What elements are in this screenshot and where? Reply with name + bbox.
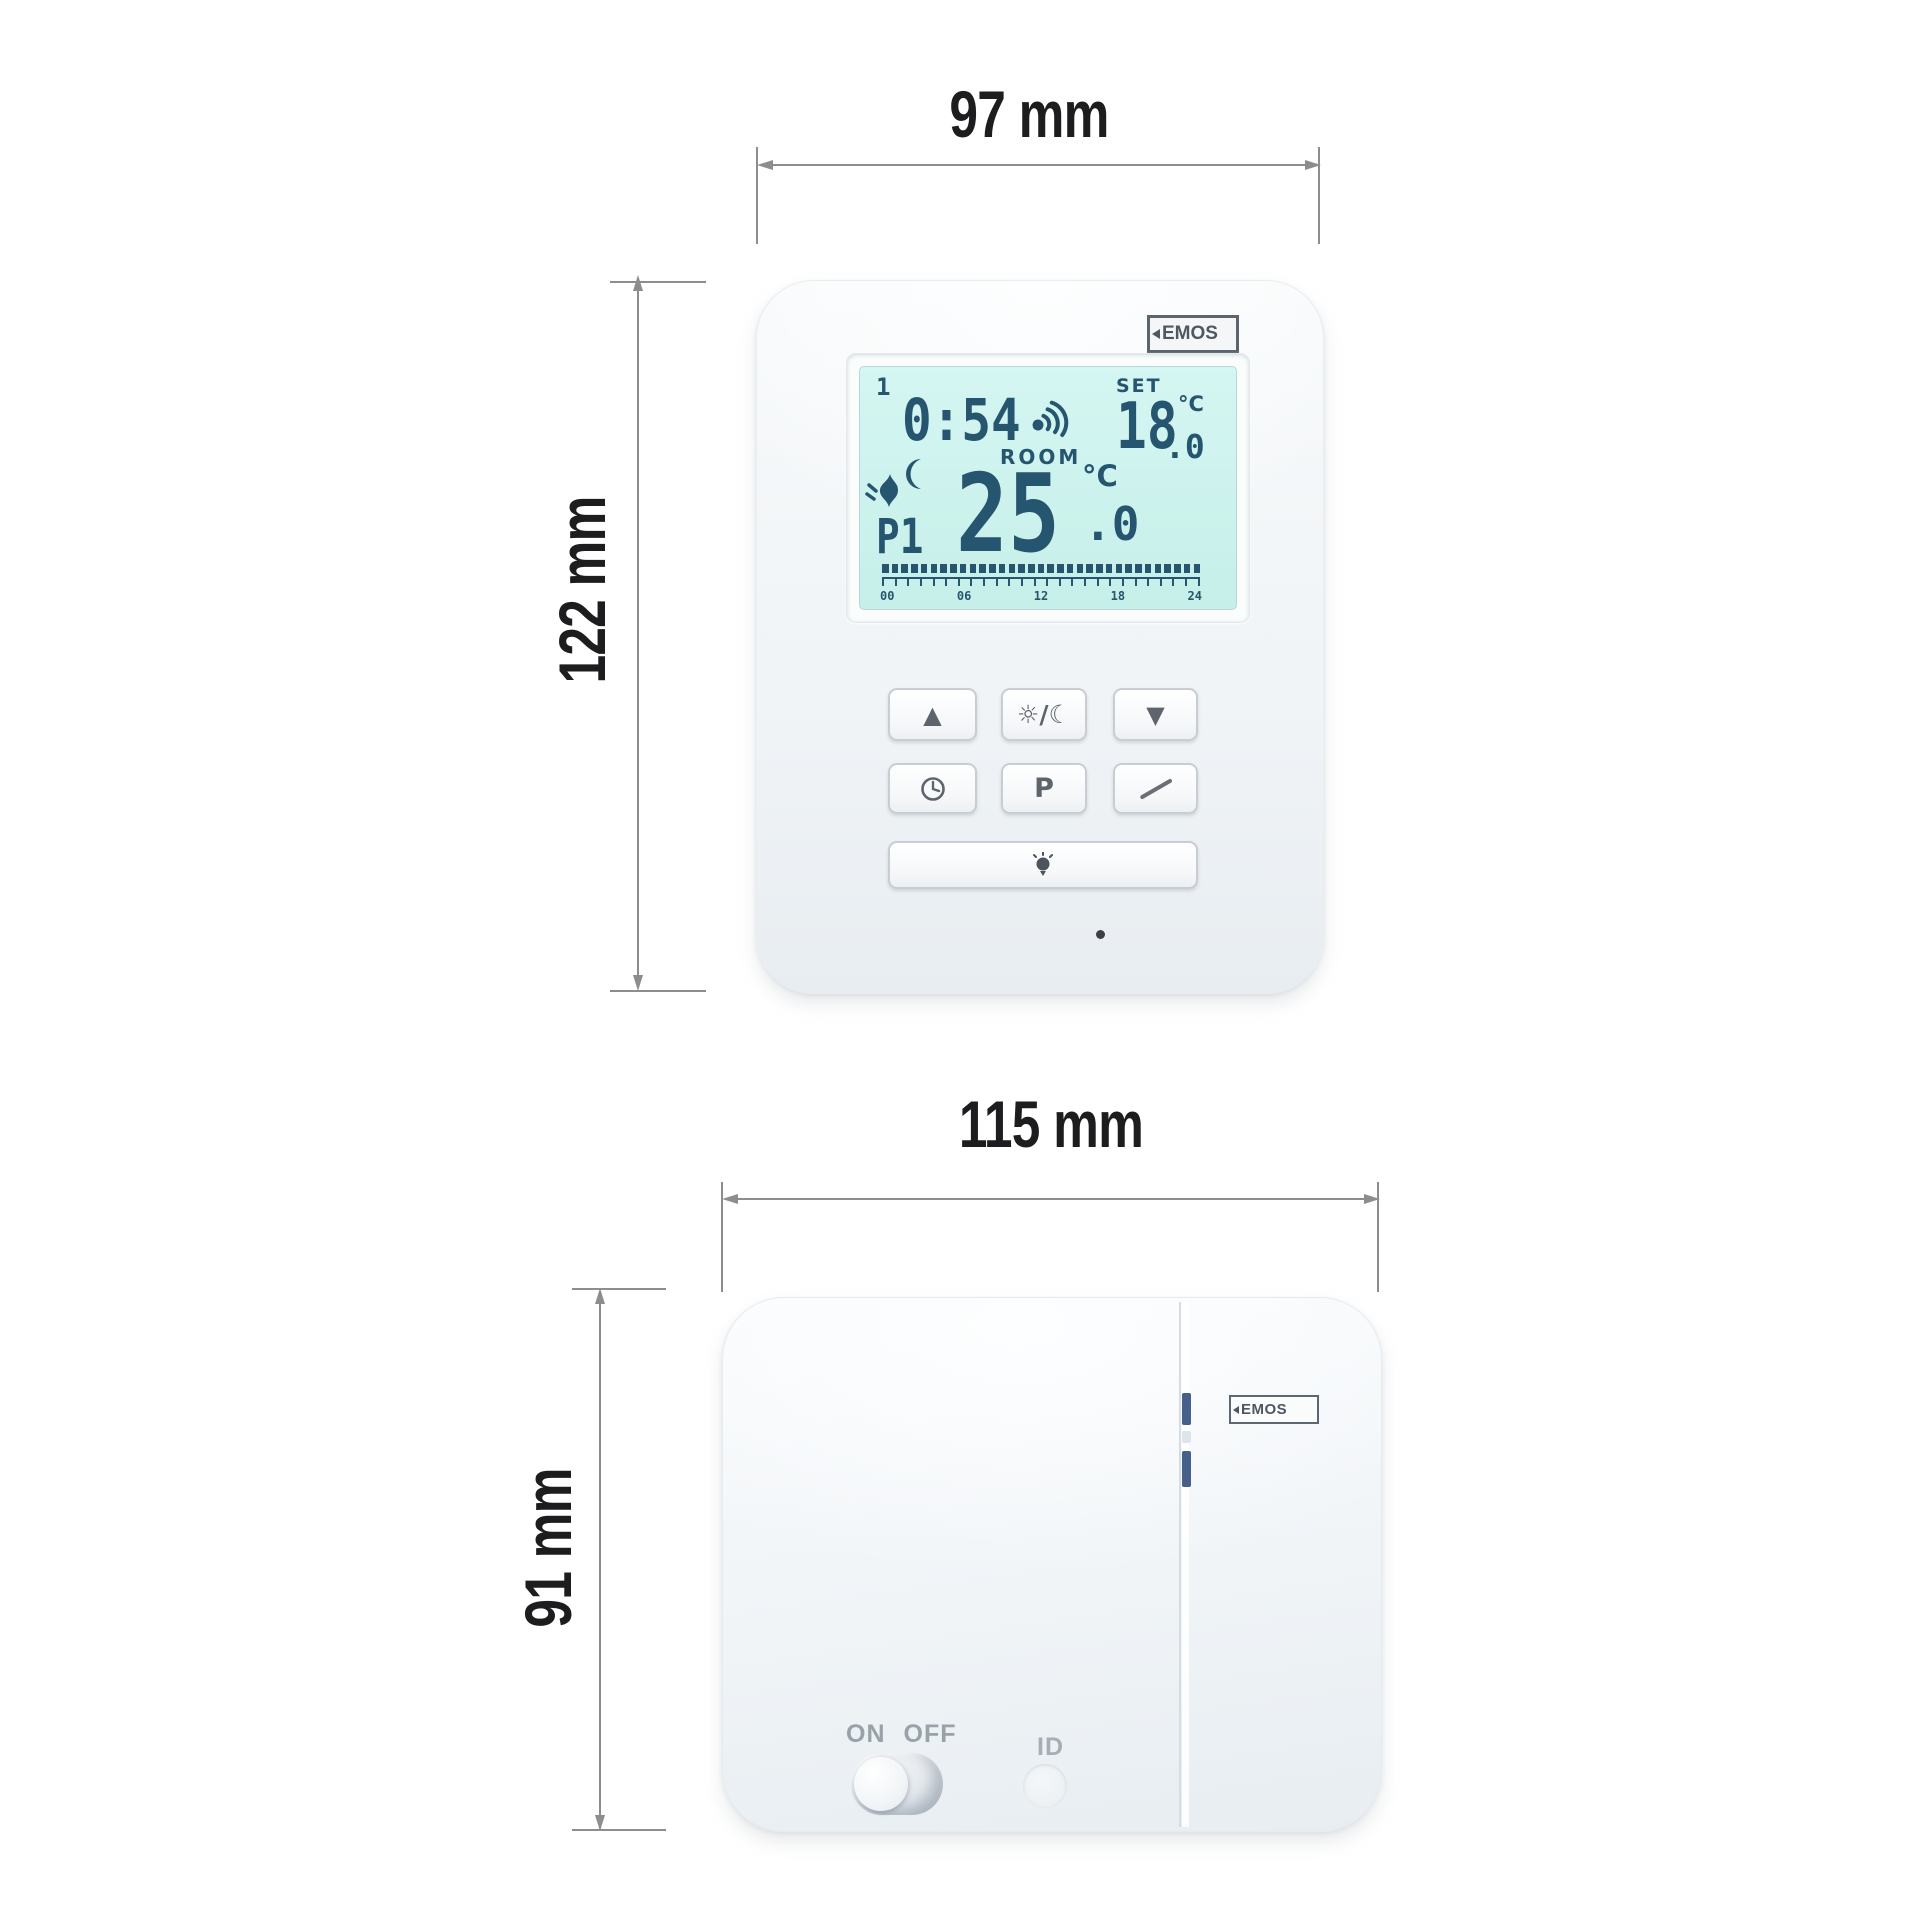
timeline-segment bbox=[1164, 564, 1171, 573]
receiver-height-label: 91 mm bbox=[510, 1468, 586, 1627]
extension-line bbox=[610, 281, 706, 283]
lcd-program-indicator: P1 bbox=[876, 513, 923, 561]
timeline-tick bbox=[1172, 579, 1174, 586]
lcd-room-temperature: 25 bbox=[956, 461, 1060, 569]
receiver-width-label: 115 mm bbox=[934, 1086, 1168, 1162]
timeline-segment bbox=[950, 564, 957, 573]
receiver-led-window-faint bbox=[1182, 1431, 1191, 1443]
clock-button[interactable] bbox=[888, 763, 977, 814]
lcd-screen: 1 0:54 SET bbox=[859, 366, 1237, 610]
timeline-segment bbox=[1145, 564, 1152, 573]
arrowhead-up bbox=[633, 275, 643, 291]
timeline-segment bbox=[901, 564, 908, 573]
lcd-set-unit: °C bbox=[1178, 394, 1204, 415]
timeline-segment bbox=[931, 564, 938, 573]
timeline-segment bbox=[1106, 564, 1113, 573]
timeline-segment bbox=[1038, 564, 1045, 573]
timeline-segment bbox=[970, 564, 977, 573]
power-toggle-switch[interactable] bbox=[851, 1753, 943, 1815]
id-pairing-button[interactable] bbox=[1023, 1764, 1067, 1808]
thermostat-width-dimension-line bbox=[760, 164, 1318, 166]
program-button-label: P bbox=[1034, 775, 1054, 802]
timeline-segment bbox=[1135, 564, 1142, 573]
timeline-segment bbox=[882, 564, 889, 573]
timeline-segment bbox=[1184, 564, 1191, 573]
timeline-segment bbox=[1067, 564, 1074, 573]
program-button[interactable]: P bbox=[1001, 763, 1087, 814]
clock-icon bbox=[919, 775, 947, 803]
timeline-segment bbox=[1096, 564, 1103, 573]
timeline-tick bbox=[945, 579, 947, 586]
timeline-tick bbox=[1147, 579, 1149, 586]
arrowhead-left bbox=[757, 160, 773, 170]
sun-slash-moon-icon: ☼/☾ bbox=[1017, 702, 1071, 727]
timeline-segment bbox=[1009, 564, 1016, 573]
timeline-hour-labels: 00 06 12 18 24 bbox=[880, 589, 1202, 603]
timeline-tick bbox=[1185, 579, 1187, 586]
timeline-segment bbox=[1077, 564, 1084, 573]
timeline-segment bbox=[1174, 564, 1181, 573]
extension-line bbox=[1377, 1182, 1379, 1292]
timeline-tick bbox=[882, 579, 884, 586]
timeline-segment bbox=[989, 564, 996, 573]
status-led bbox=[1096, 930, 1105, 939]
timeline-tick bbox=[1046, 579, 1048, 586]
timeline-hour-label: 24 bbox=[1188, 589, 1202, 603]
emos-logo: EMOS bbox=[1147, 315, 1239, 353]
timeline-hour-label: 12 bbox=[1034, 589, 1048, 603]
timeline-segment bbox=[999, 564, 1006, 573]
receiver-body: EMOS ON OFF ID bbox=[722, 1297, 1382, 1832]
flame-icon bbox=[864, 471, 904, 513]
timeline-tick bbox=[1034, 579, 1036, 586]
timeline-segment bbox=[1194, 564, 1201, 573]
bulb-icon bbox=[1031, 852, 1055, 878]
timeline-tick bbox=[970, 579, 972, 586]
extension-line bbox=[1318, 147, 1320, 244]
arrowhead-up bbox=[595, 1288, 605, 1304]
timeline-segment bbox=[1086, 564, 1093, 573]
receiver-width-dimension-line bbox=[725, 1198, 1377, 1200]
moon-icon bbox=[900, 457, 930, 491]
timeline-segment bbox=[1155, 564, 1162, 573]
timeline-tick bbox=[895, 579, 897, 586]
timeline-segment bbox=[1116, 564, 1123, 573]
thermostat-body: EMOS 1 0:54 bbox=[756, 280, 1324, 994]
power-switch-labels: ON OFF bbox=[846, 1720, 957, 1749]
timeline-tick bbox=[1198, 579, 1200, 586]
on-label: ON bbox=[846, 1720, 886, 1749]
toggle-knob[interactable] bbox=[854, 1757, 908, 1811]
lcd-set-temperature-decimal: .0 bbox=[1165, 430, 1205, 463]
timeline-tick bbox=[920, 579, 922, 586]
product-dimension-diagram: 97 mm 122 mm EMOS 1 0:54 bbox=[0, 0, 1920, 1920]
lcd-time: 0:54 bbox=[902, 391, 1021, 449]
receiver-seam-highlight bbox=[1182, 1302, 1189, 1827]
emos-logo-text: EMOS bbox=[1241, 1401, 1287, 1418]
signal-icon bbox=[1026, 395, 1074, 439]
timeline-segment bbox=[940, 564, 947, 573]
timeline-segment bbox=[960, 564, 967, 573]
down-arrow-icon: ▼ bbox=[1146, 703, 1164, 727]
timeline-tick bbox=[1109, 579, 1111, 586]
backlight-button[interactable] bbox=[888, 841, 1198, 889]
timeline-segment bbox=[1125, 564, 1132, 573]
timeline-segment bbox=[911, 564, 918, 573]
extension-line bbox=[610, 990, 706, 992]
lcd-room-temperature-decimal: .0 bbox=[1084, 501, 1139, 547]
timeline-segment bbox=[1018, 564, 1025, 573]
receiver-led-window-2 bbox=[1182, 1451, 1191, 1487]
timeline-hour-label: 00 bbox=[880, 589, 894, 603]
timeline-tick bbox=[1021, 579, 1023, 586]
timeline-tick bbox=[1008, 579, 1010, 586]
up-button[interactable]: ▲ bbox=[888, 688, 977, 741]
timeline-tick bbox=[1097, 579, 1099, 586]
timeline-ticks bbox=[882, 579, 1200, 586]
lcd-day-indicator: 1 bbox=[876, 375, 890, 399]
timeline-segments bbox=[882, 564, 1200, 573]
receiver-seam-groove bbox=[1179, 1302, 1181, 1827]
receiver-height-dimension-line bbox=[599, 1291, 601, 1829]
timeline-tick bbox=[1084, 579, 1086, 586]
day-night-button[interactable]: ☼/☾ bbox=[1001, 688, 1087, 741]
arrowhead-down bbox=[633, 975, 643, 991]
extension-line bbox=[572, 1829, 666, 1831]
lcd-room-unit: °C bbox=[1082, 462, 1118, 491]
timeline-hour-label: 18 bbox=[1111, 589, 1125, 603]
timeline-tick bbox=[1071, 579, 1073, 586]
id-label: ID bbox=[1037, 1733, 1064, 1762]
extension-line bbox=[721, 1182, 723, 1292]
lcd-bezel: 1 0:54 SET bbox=[846, 353, 1250, 623]
timeline-tick bbox=[1160, 579, 1162, 586]
timeline-segment bbox=[1028, 564, 1035, 573]
emos-logo-arrow bbox=[1233, 1406, 1239, 1414]
thermostat-height-label: 122 mm bbox=[544, 496, 620, 683]
timeline-segment bbox=[1047, 564, 1054, 573]
edit-button[interactable] bbox=[1113, 763, 1198, 814]
up-arrow-icon: ▲ bbox=[923, 703, 941, 727]
timeline-tick bbox=[1122, 579, 1124, 586]
receiver-led-window-1 bbox=[1182, 1393, 1191, 1425]
timeline-segment bbox=[892, 564, 899, 573]
timeline-tick bbox=[907, 579, 909, 586]
thermostat-height-dimension-line bbox=[637, 278, 639, 988]
emos-logo-arrow bbox=[1152, 329, 1160, 339]
extension-line bbox=[572, 1288, 666, 1290]
arrowhead-left bbox=[722, 1194, 738, 1204]
timeline-tick bbox=[933, 579, 935, 586]
timeline-tick bbox=[1059, 579, 1061, 586]
timeline-segment bbox=[1057, 564, 1064, 573]
emos-logo-text: EMOS bbox=[1162, 323, 1218, 345]
emos-logo: EMOS bbox=[1229, 1395, 1319, 1424]
off-label: OFF bbox=[904, 1720, 957, 1749]
thermostat-width-label: 97 mm bbox=[912, 76, 1146, 152]
edit-slash-icon bbox=[1139, 778, 1172, 799]
timeline-tick bbox=[958, 579, 960, 586]
down-button[interactable]: ▼ bbox=[1113, 688, 1198, 741]
timeline-segment bbox=[921, 564, 928, 573]
timeline-tick bbox=[1135, 579, 1137, 586]
timeline-tick bbox=[996, 579, 998, 586]
timeline-segment bbox=[979, 564, 986, 573]
timeline-hour-label: 06 bbox=[957, 589, 971, 603]
extension-line bbox=[756, 147, 758, 244]
timeline-tick bbox=[983, 579, 985, 586]
